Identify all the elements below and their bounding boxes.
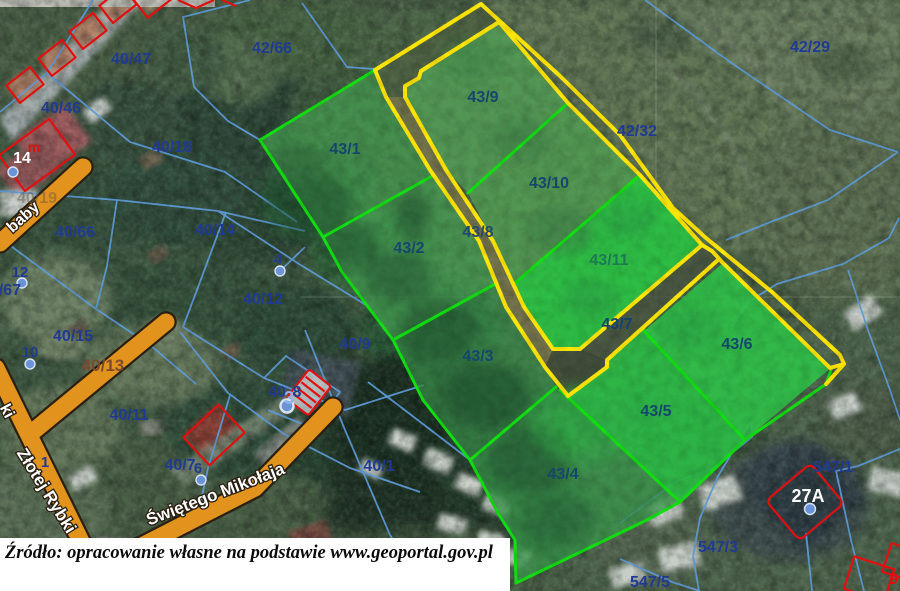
- svg-text:43/2: 43/2: [393, 240, 424, 257]
- svg-text:m: m: [28, 139, 40, 155]
- svg-text:40/14: 40/14: [195, 222, 235, 239]
- svg-text:40/67: 40/67: [0, 282, 21, 299]
- svg-text:43/7: 43/7: [601, 316, 632, 333]
- svg-text:6: 6: [194, 460, 202, 477]
- svg-text:547/3: 547/3: [698, 539, 738, 556]
- svg-text:40/15: 40/15: [53, 328, 93, 345]
- svg-text:43/6: 43/6: [721, 336, 752, 353]
- svg-text:9: 9: [890, 571, 899, 588]
- svg-text:43/3: 43/3: [462, 348, 493, 365]
- svg-text:42/66: 42/66: [252, 40, 292, 57]
- svg-text:40/9: 40/9: [339, 336, 370, 353]
- svg-text:3: 3: [284, 388, 294, 408]
- svg-text:40/46: 40/46: [41, 100, 81, 117]
- svg-text:40/66: 40/66: [55, 224, 95, 241]
- svg-text:4: 4: [274, 251, 283, 268]
- svg-text:547/5: 547/5: [630, 574, 670, 591]
- svg-text:43/5: 43/5: [640, 403, 671, 420]
- svg-text:43/1: 43/1: [329, 141, 360, 158]
- svg-text:40/12: 40/12: [243, 291, 283, 308]
- svg-text:43/4: 43/4: [547, 466, 578, 483]
- svg-text:42/29: 42/29: [790, 39, 830, 56]
- svg-text:43/10: 43/10: [529, 175, 569, 192]
- svg-text:43/8: 43/8: [462, 224, 493, 241]
- svg-text:27A: 27A: [791, 486, 824, 506]
- svg-text:547/1: 547/1: [813, 459, 853, 476]
- svg-text:40/1: 40/1: [363, 458, 394, 475]
- svg-text:40/7: 40/7: [164, 457, 195, 474]
- svg-text:10: 10: [22, 344, 39, 361]
- svg-text:12: 12: [12, 264, 29, 281]
- svg-text:Źródło: opracowanie własne na: Źródło: opracowanie własne na podstawie …: [4, 541, 494, 563]
- svg-text:40/11: 40/11: [109, 407, 148, 424]
- svg-text:40/47: 40/47: [111, 51, 151, 68]
- svg-text:43/11: 43/11: [589, 252, 628, 269]
- svg-text:40/13: 40/13: [82, 356, 125, 375]
- svg-text:40/18: 40/18: [152, 139, 192, 156]
- svg-text:40/19: 40/19: [17, 190, 57, 207]
- svg-text:42/32: 42/32: [617, 123, 657, 140]
- svg-text:43/9: 43/9: [467, 89, 498, 106]
